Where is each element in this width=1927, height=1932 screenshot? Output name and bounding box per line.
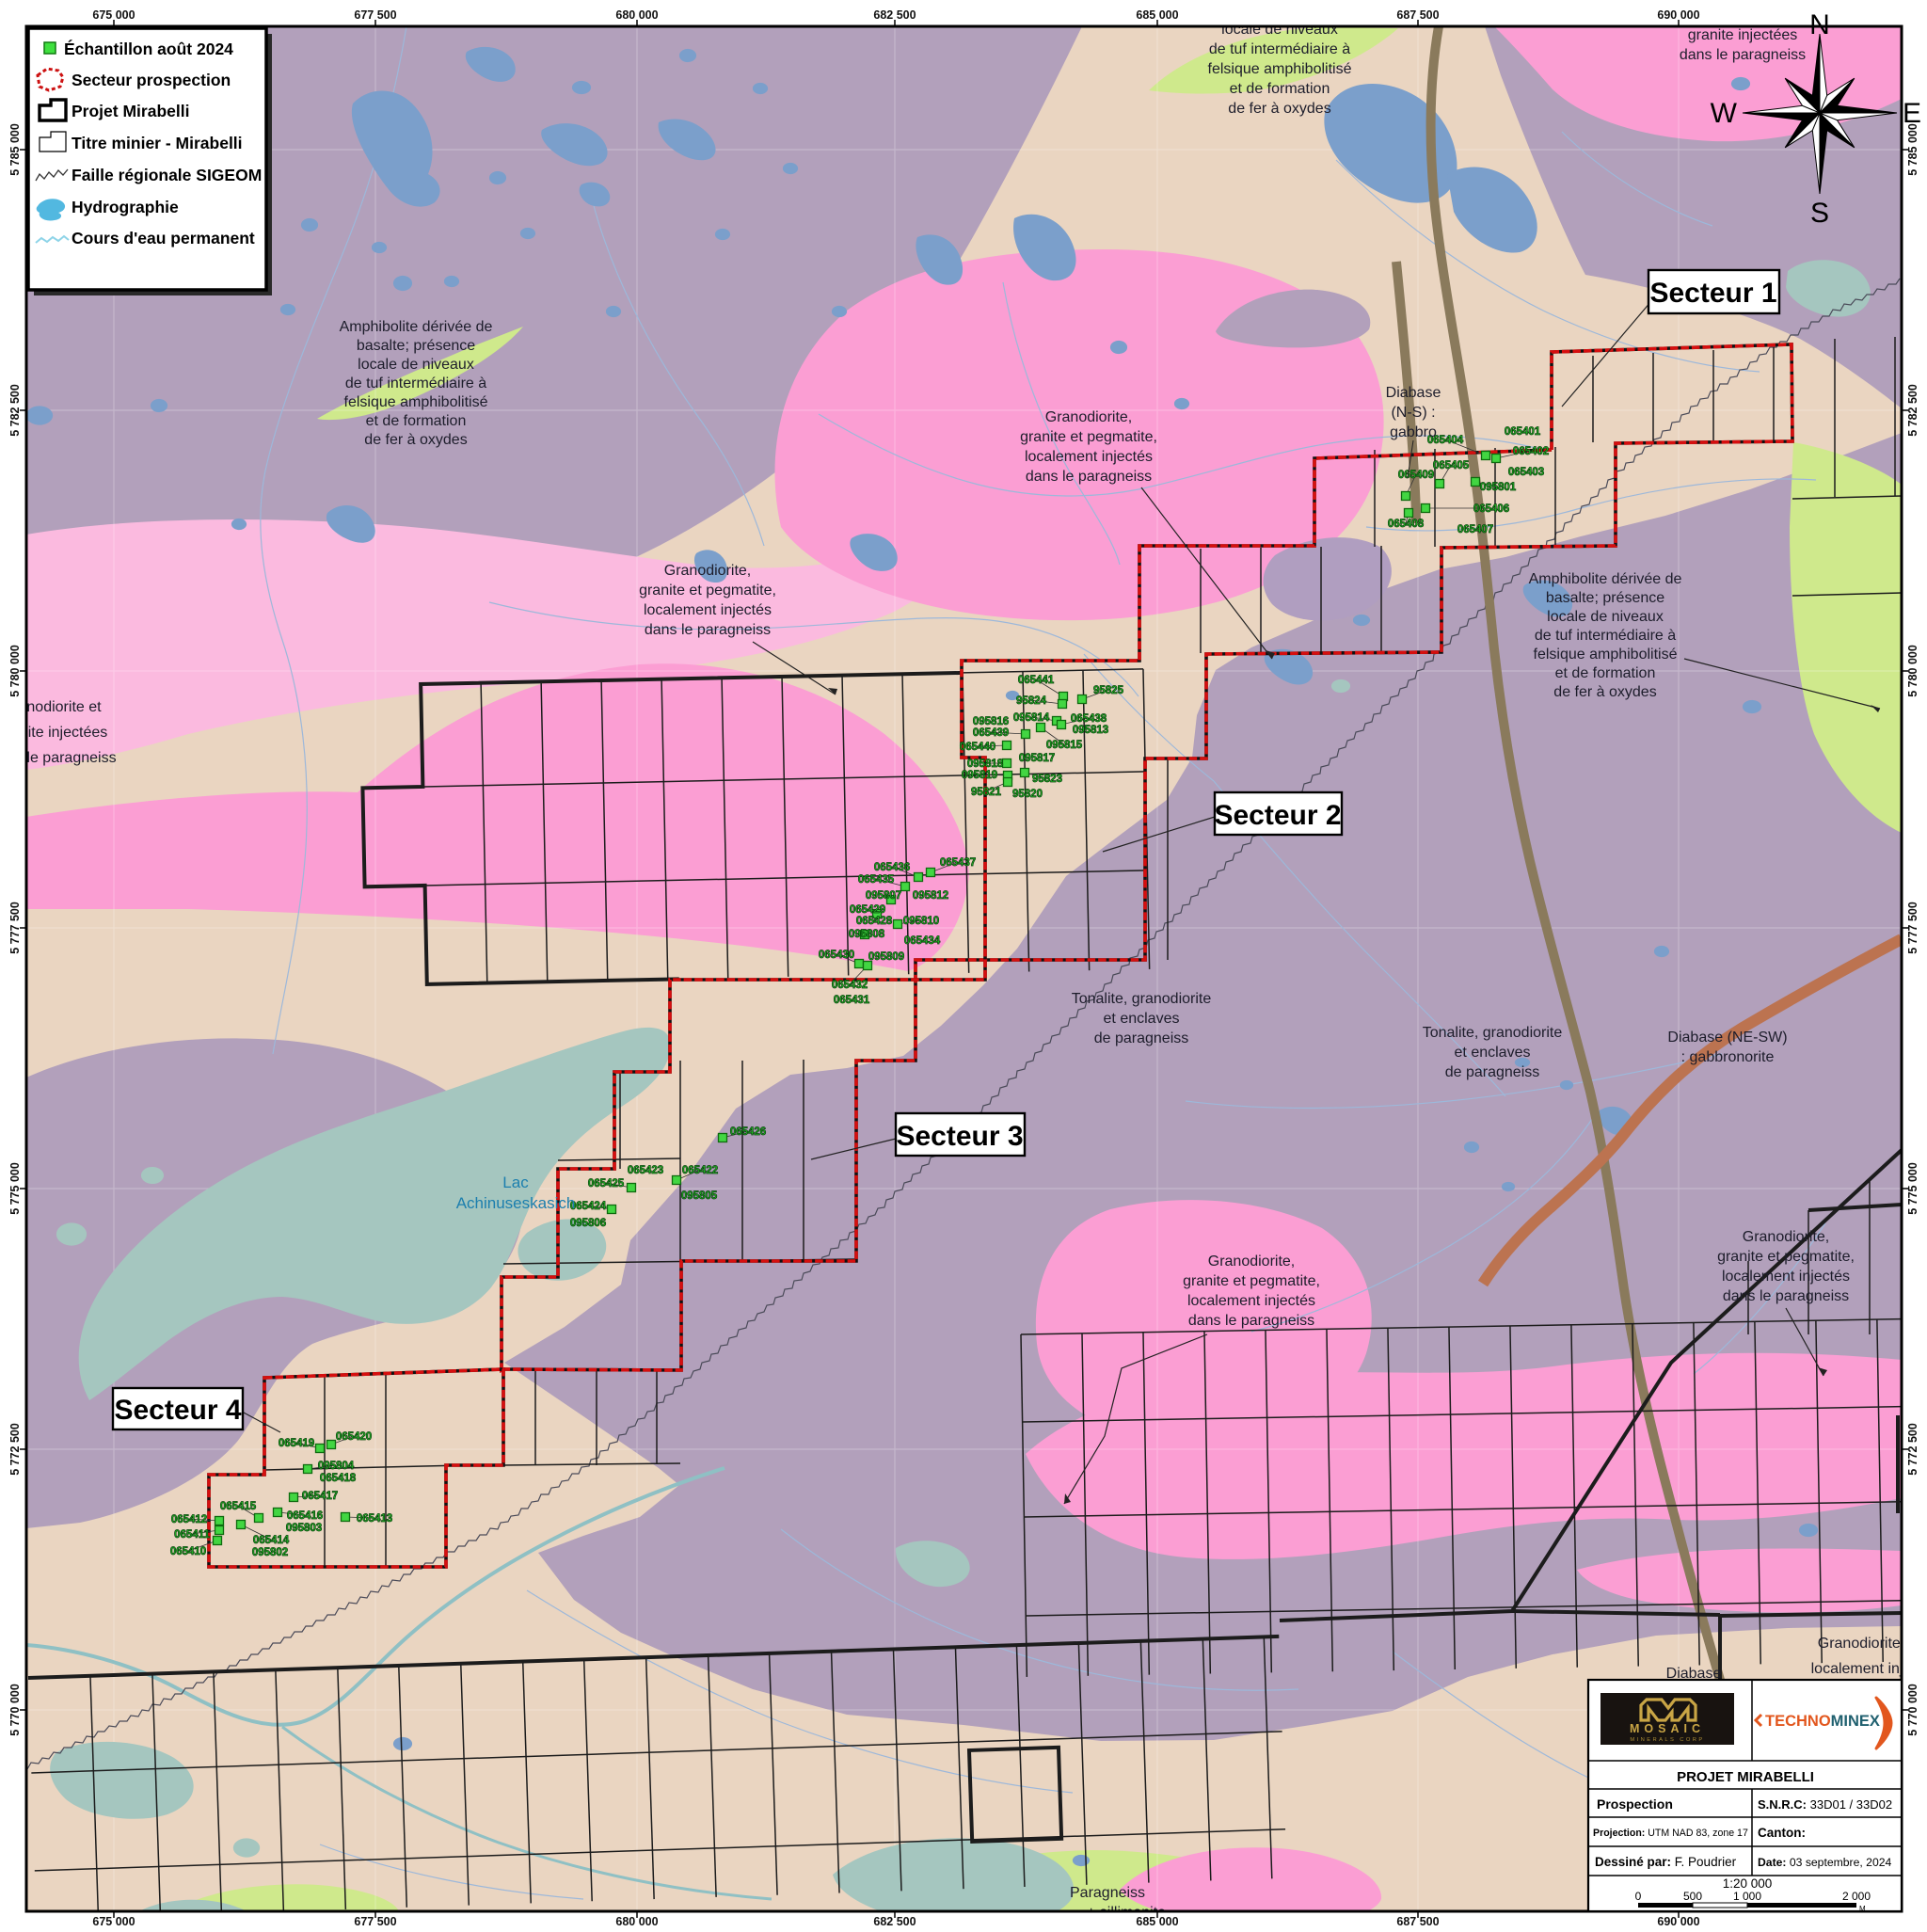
- svg-text:065419: 065419: [279, 1438, 314, 1449]
- svg-text:065426: 065426: [730, 1126, 766, 1138]
- svg-text:Faille régionale SIGEOM: Faille régionale SIGEOM: [72, 166, 262, 184]
- svg-text:065401: 065401: [1505, 426, 1541, 438]
- svg-text:Titre minier - Mirabelli: Titre minier - Mirabelli: [72, 134, 243, 152]
- svg-text:065438: 065438: [1071, 713, 1107, 725]
- svg-text:065416: 065416: [287, 1510, 323, 1522]
- svg-text:Secteur prospection: Secteur prospection: [72, 71, 231, 89]
- svg-text:065425: 065425: [588, 1178, 625, 1190]
- svg-text:5 785 000: 5 785 000: [8, 123, 22, 176]
- svg-text:065434: 065434: [904, 935, 941, 947]
- svg-text:locale de niveauxde tuf interm: locale de niveauxde tuf intermédiaire àf…: [1208, 22, 1352, 117]
- svg-text:095807: 095807: [866, 890, 901, 902]
- svg-text:065435: 065435: [858, 874, 895, 886]
- svg-text:065422: 065422: [682, 1165, 718, 1176]
- svg-text:065436: 065436: [874, 862, 910, 873]
- svg-text:1 000: 1 000: [1733, 1890, 1761, 1903]
- svg-text:500: 500: [1683, 1890, 1702, 1903]
- svg-text:065437: 065437: [940, 857, 976, 869]
- svg-text:095808: 095808: [849, 929, 885, 940]
- svg-text:065414: 065414: [253, 1535, 290, 1546]
- svg-text:095819: 095819: [962, 770, 997, 781]
- svg-text:065428: 065428: [856, 916, 893, 927]
- svg-text:677 500: 677 500: [354, 8, 396, 22]
- svg-text:095812: 095812: [913, 890, 948, 902]
- svg-text:M: M: [1859, 1905, 1866, 1913]
- svg-text:095803: 095803: [286, 1523, 322, 1534]
- svg-text:687 500: 687 500: [1396, 8, 1439, 22]
- svg-text:Secteur 3: Secteur 3: [896, 1121, 1023, 1152]
- svg-text:095810: 095810: [903, 916, 939, 927]
- svg-text:5 775 000: 5 775 000: [8, 1162, 22, 1215]
- svg-text:065411: 065411: [174, 1529, 210, 1541]
- svg-text:675 000: 675 000: [92, 8, 135, 22]
- svg-text:065413: 065413: [357, 1513, 392, 1525]
- svg-text:065441: 065441: [1018, 675, 1055, 686]
- svg-text:Échantillon août 2024: Échantillon août 2024: [64, 39, 233, 58]
- svg-text:065406: 065406: [1473, 503, 1509, 515]
- svg-text:5 772 500: 5 772 500: [8, 1423, 22, 1476]
- svg-text:095804: 095804: [318, 1461, 355, 1472]
- svg-text:095805: 095805: [681, 1190, 718, 1202]
- svg-text:TECHNOMINEX: TECHNOMINEX: [1765, 1713, 1880, 1730]
- svg-text:5 782 500: 5 782 500: [1906, 384, 1919, 437]
- svg-text:Secteur 4: Secteur 4: [114, 1395, 241, 1426]
- svg-text:095809: 095809: [868, 951, 904, 963]
- svg-text:065403: 065403: [1508, 467, 1544, 478]
- svg-text:065439: 065439: [973, 727, 1009, 739]
- svg-text:065412: 065412: [171, 1514, 207, 1525]
- svg-text:5 770 000: 5 770 000: [8, 1684, 22, 1736]
- svg-text:W: W: [1711, 98, 1738, 129]
- svg-text:5 777 500: 5 777 500: [1906, 902, 1919, 954]
- svg-text:065420: 065420: [336, 1431, 372, 1443]
- svg-text:095818: 095818: [967, 758, 1004, 770]
- svg-text:5 775 000: 5 775 000: [1906, 1162, 1919, 1215]
- svg-text:682 500: 682 500: [873, 8, 916, 22]
- svg-text:0: 0: [1635, 1890, 1642, 1903]
- svg-text:065407: 065407: [1457, 524, 1493, 535]
- svg-text:095802: 095802: [252, 1547, 288, 1558]
- svg-text:095806: 095806: [570, 1218, 606, 1229]
- svg-text:95820: 95820: [1012, 789, 1043, 800]
- svg-text:Prospection: Prospection: [1597, 1796, 1673, 1812]
- svg-text:685 000: 685 000: [1136, 8, 1178, 22]
- svg-text:065402: 065402: [1513, 446, 1549, 457]
- svg-text:MOSAIC: MOSAIC: [1630, 1722, 1705, 1735]
- svg-text:095816: 095816: [973, 716, 1009, 727]
- svg-text:5 780 000: 5 780 000: [1906, 645, 1919, 697]
- svg-text:Dessiné par: F. Poudrier: Dessiné par: F. Poudrier: [1595, 1855, 1737, 1869]
- svg-text:065430: 065430: [819, 950, 854, 961]
- svg-text:Canton:: Canton:: [1758, 1826, 1806, 1840]
- svg-text:5 770 000: 5 770 000: [1906, 1684, 1919, 1736]
- svg-text:95825: 95825: [1093, 685, 1124, 696]
- svg-text:Secteur 2: Secteur 2: [1214, 800, 1341, 831]
- svg-text:5 777 500: 5 777 500: [8, 902, 22, 954]
- svg-text:065409: 065409: [1398, 470, 1434, 481]
- svg-text:Hydrographie: Hydrographie: [72, 198, 179, 216]
- svg-text:95824: 95824: [1016, 695, 1047, 707]
- svg-text:065423: 065423: [628, 1165, 663, 1176]
- svg-text:Cours d'eau permanent: Cours d'eau permanent: [72, 229, 255, 247]
- svg-text:065432: 065432: [832, 980, 868, 991]
- svg-text:095814: 095814: [1013, 712, 1050, 724]
- svg-text:95821: 95821: [971, 787, 1002, 798]
- svg-text:065440: 065440: [960, 742, 995, 753]
- svg-text:1:20 000: 1:20 000: [1723, 1876, 1773, 1891]
- svg-text:Projet Mirabelli: Projet Mirabelli: [72, 102, 189, 120]
- svg-text:065415: 065415: [220, 1501, 257, 1512]
- svg-text:065405: 065405: [1433, 460, 1470, 471]
- svg-text:Projection: UTM NAD 83, zone 1: Projection: UTM NAD 83, zone 17: [1593, 1828, 1748, 1839]
- svg-text:Diabase(N-S) :gabbro: Diabase(N-S) :gabbro: [1386, 385, 1441, 440]
- svg-text:690 000: 690 000: [1657, 8, 1699, 22]
- svg-text:S: S: [1810, 198, 1829, 229]
- svg-text:5 780 000: 5 780 000: [8, 645, 22, 697]
- svg-text:095817: 095817: [1019, 753, 1055, 764]
- svg-text:095815: 095815: [1046, 740, 1083, 751]
- svg-text:S.N.R.C: 33D01 / 33D02: S.N.R.C: 33D01 / 33D02: [1758, 1797, 1892, 1812]
- svg-text:MINERALS CORP: MINERALS CORP: [1630, 1737, 1704, 1743]
- svg-text:5 785 000: 5 785 000: [1906, 123, 1919, 176]
- svg-text:065418: 065418: [320, 1473, 357, 1484]
- svg-text:095801: 095801: [1480, 482, 1517, 493]
- svg-text:680 000: 680 000: [615, 8, 658, 22]
- svg-text:065417: 065417: [302, 1491, 338, 1502]
- svg-text:2 000: 2 000: [1842, 1890, 1871, 1903]
- svg-text:065410: 065410: [170, 1546, 206, 1557]
- svg-text:065424: 065424: [570, 1201, 607, 1212]
- svg-text:065431: 065431: [834, 995, 870, 1006]
- svg-text:95823: 95823: [1032, 774, 1062, 785]
- svg-text:PROJET MIRABELLI: PROJET MIRABELLI: [1677, 1769, 1814, 1785]
- svg-text:Secteur 1: Secteur 1: [1649, 278, 1776, 309]
- svg-text:Date: 03 septembre, 2024: Date: 03 septembre, 2024: [1758, 1856, 1892, 1869]
- svg-text:065429: 065429: [850, 904, 885, 916]
- svg-text:5 782 500: 5 782 500: [8, 384, 22, 437]
- svg-text:065408: 065408: [1388, 519, 1425, 530]
- svg-text:5 772 500: 5 772 500: [1906, 1423, 1919, 1476]
- svg-text:095813: 095813: [1073, 725, 1108, 736]
